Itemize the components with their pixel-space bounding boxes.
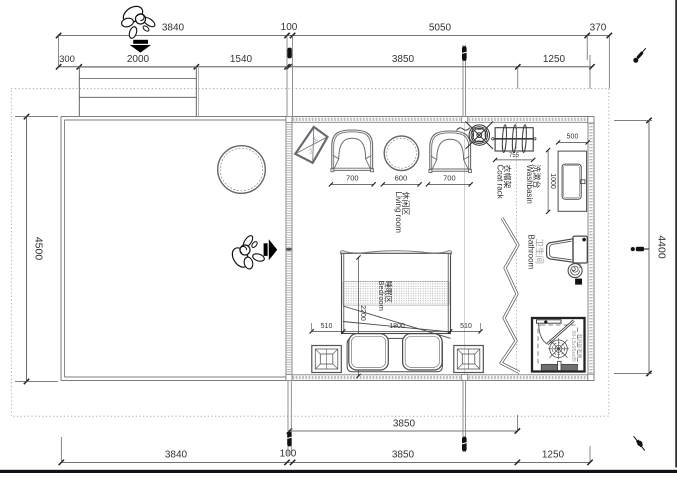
svg-text:1250: 1250 xyxy=(543,54,566,65)
svg-text:370: 370 xyxy=(590,23,607,34)
svg-text:1000: 1000 xyxy=(549,173,556,189)
svg-text:3840: 3840 xyxy=(162,23,185,34)
svg-text:淋浴房地面: 淋浴房地面 xyxy=(576,334,583,359)
svg-text:600: 600 xyxy=(395,174,408,183)
svg-text:1250: 1250 xyxy=(542,450,565,461)
svg-text:510: 510 xyxy=(321,323,333,330)
svg-text:500: 500 xyxy=(567,134,579,141)
svg-text:1540: 1540 xyxy=(230,54,253,65)
svg-text:510: 510 xyxy=(460,323,472,330)
svg-text:700: 700 xyxy=(443,174,456,183)
svg-text:1800: 1800 xyxy=(389,323,405,330)
svg-text:3850: 3850 xyxy=(392,54,415,65)
svg-text:3850: 3850 xyxy=(393,419,416,430)
svg-text:300: 300 xyxy=(59,54,75,65)
svg-text:09-L5x95xx05: 09-L5x95xx05 xyxy=(570,331,576,363)
svg-text:5050: 5050 xyxy=(429,23,452,34)
svg-text:4400: 4400 xyxy=(656,235,668,259)
svg-text:3850: 3850 xyxy=(392,450,415,461)
svg-text:Bathroom: Bathroom xyxy=(526,235,535,270)
svg-text:700: 700 xyxy=(346,174,359,183)
svg-text:100: 100 xyxy=(281,22,298,33)
svg-text:3840: 3840 xyxy=(165,450,188,461)
svg-text:2200: 2200 xyxy=(359,305,366,321)
svg-text:卫生间: 卫生间 xyxy=(534,239,544,265)
svg-text:4500: 4500 xyxy=(33,237,45,261)
svg-text:2000: 2000 xyxy=(127,54,150,65)
svg-text:755: 755 xyxy=(509,153,520,159)
